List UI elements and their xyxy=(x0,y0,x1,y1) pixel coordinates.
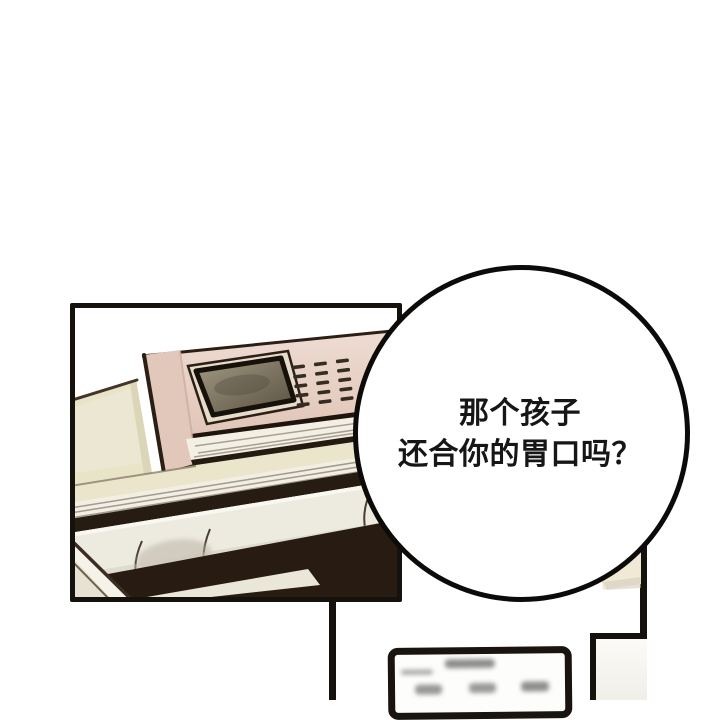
bubble-line-2: 还合你的胃口吗？ xyxy=(350,434,690,475)
bottom-panel-left-border xyxy=(329,597,336,700)
flyer-smudge xyxy=(469,683,496,693)
speech-bubble-text: 那个孩子 还合你的胃口吗？ xyxy=(350,393,690,475)
flyer-smudge xyxy=(521,681,549,691)
paper-sheet-corner xyxy=(590,633,647,700)
blurred-flyer xyxy=(388,646,573,720)
bubble-line-1: 那个孩子 xyxy=(350,393,690,434)
flyer-smudge xyxy=(401,669,433,674)
flyer-smudge xyxy=(415,684,442,694)
comic-page: { "canvas": { "width": 720, "height": 70… xyxy=(0,0,720,700)
still-life-drawing xyxy=(75,308,397,597)
cream-book xyxy=(75,379,152,485)
flyer-smudge xyxy=(445,659,495,669)
